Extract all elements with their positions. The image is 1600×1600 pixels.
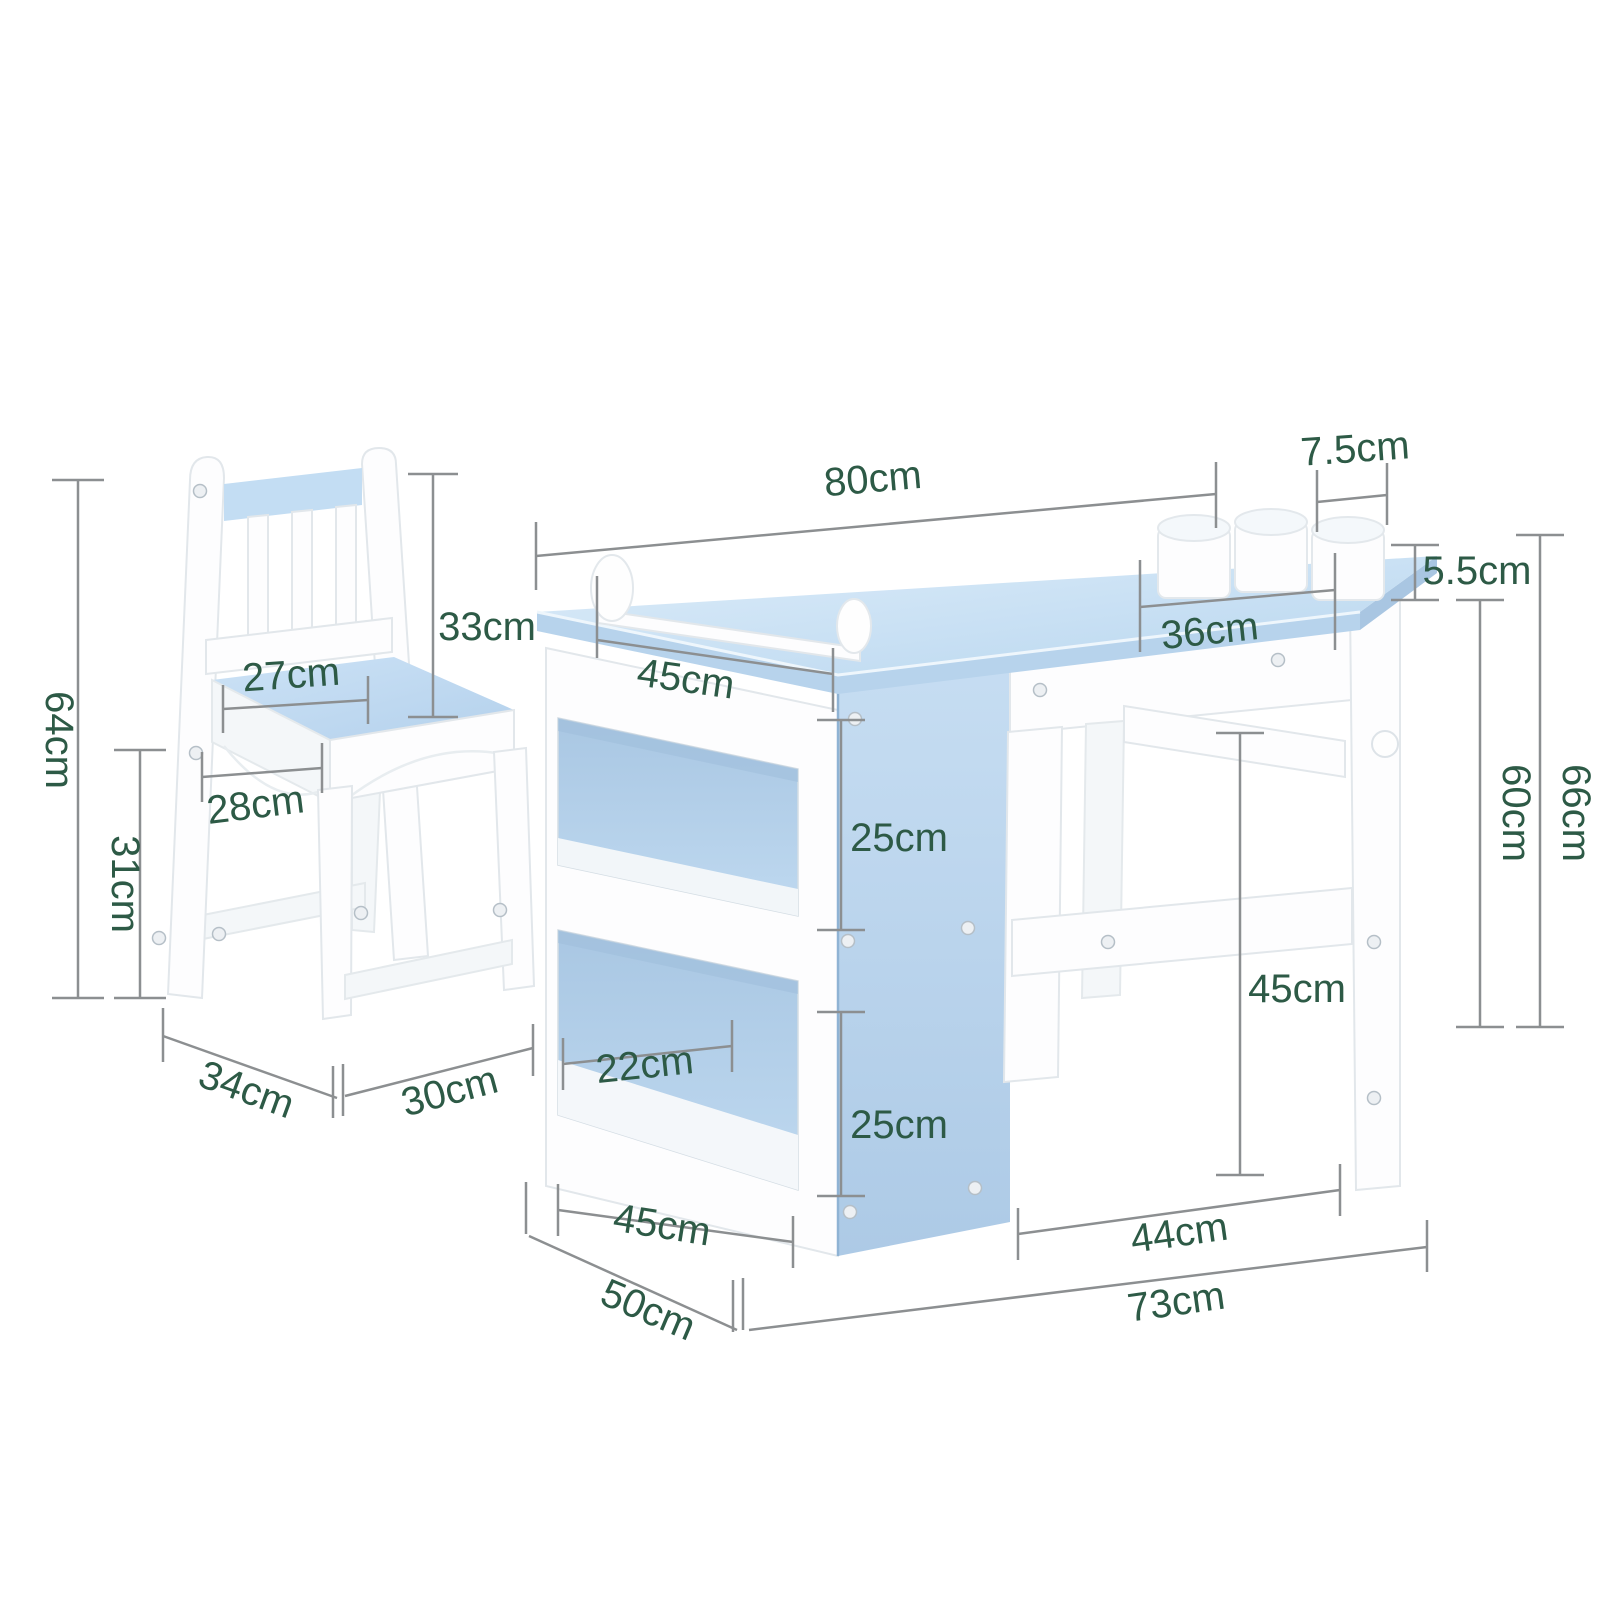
dim-label-cup-height: 5.5cm xyxy=(1423,549,1532,593)
screw-icon xyxy=(844,1206,857,1219)
dim-label-desk-total-height: 66cm xyxy=(1554,764,1598,862)
screw-icon xyxy=(153,932,166,945)
screw-icon xyxy=(213,928,226,941)
dim-label-chair-back-width: 27cm xyxy=(241,650,342,701)
screw-icon xyxy=(962,922,975,935)
desk-upper-side-rail xyxy=(1124,706,1345,777)
screw-icon xyxy=(1272,654,1285,667)
cup xyxy=(1312,517,1384,600)
screw-icon xyxy=(1368,1092,1381,1105)
cup-rim xyxy=(1158,515,1230,541)
dim-label-chair-seat-depth: 28cm xyxy=(204,777,306,833)
cup xyxy=(1158,515,1230,598)
screw-icon xyxy=(1368,936,1381,949)
desk-lower-stretcher xyxy=(1012,888,1352,976)
screw-icon xyxy=(969,1182,982,1195)
dim-label-chair-footprint-width: 30cm xyxy=(397,1058,503,1126)
dim-label-desk-leg-clearance-height: 45cm xyxy=(1248,967,1346,1011)
dim-label-chair-footprint-depth: 34cm xyxy=(193,1052,300,1127)
diagram-canvas: 80cm 7.5cm 5.5cm 36cm 45cm xyxy=(0,0,1600,1600)
dim-label-shelf-upper-cubby-height: 25cm xyxy=(850,816,948,860)
cup xyxy=(1235,509,1307,592)
screw-icon xyxy=(190,747,203,760)
dim-label-shelf-lower-cubby-height: 25cm xyxy=(850,1103,948,1147)
desk-middle-front-leg xyxy=(1004,727,1062,1082)
dim-label-chair-seat-height: 31cm xyxy=(103,835,147,933)
screw-icon xyxy=(355,907,368,920)
dim-label-cup-diameter: 7.5cm xyxy=(1299,423,1411,474)
dimension-diagram: 80cm 7.5cm 5.5cm 36cm 45cm xyxy=(0,0,1600,1600)
screw-icon xyxy=(1102,936,1115,949)
dim-line xyxy=(749,1247,1427,1330)
dim-line xyxy=(536,494,1216,556)
screw-icon xyxy=(842,935,855,948)
desk-right-leg-knob xyxy=(1372,731,1398,757)
dim-label-desk-top-width: 80cm xyxy=(822,453,923,505)
desk xyxy=(537,509,1437,1256)
dim-label-desk-surface-height: 60cm xyxy=(1494,764,1538,862)
paper-roll-right-finial xyxy=(837,599,871,653)
dim-label-chair-total-height: 64cm xyxy=(37,691,81,789)
dim-label-desk-leg-span: 44cm xyxy=(1128,1205,1231,1262)
shelf-side-panel xyxy=(838,660,1010,1256)
screw-icon xyxy=(1034,684,1047,697)
cup-rim xyxy=(1312,517,1384,543)
dim-label-shelf-depth: 50cm xyxy=(594,1271,701,1350)
cups xyxy=(1158,509,1384,600)
screw-icon xyxy=(494,904,507,917)
dim-line xyxy=(1317,495,1387,502)
chair xyxy=(153,448,535,1019)
dim-label-chair-backrest-height: 33cm xyxy=(438,605,536,649)
screw-icon xyxy=(194,485,207,498)
cup-rim xyxy=(1235,509,1307,535)
